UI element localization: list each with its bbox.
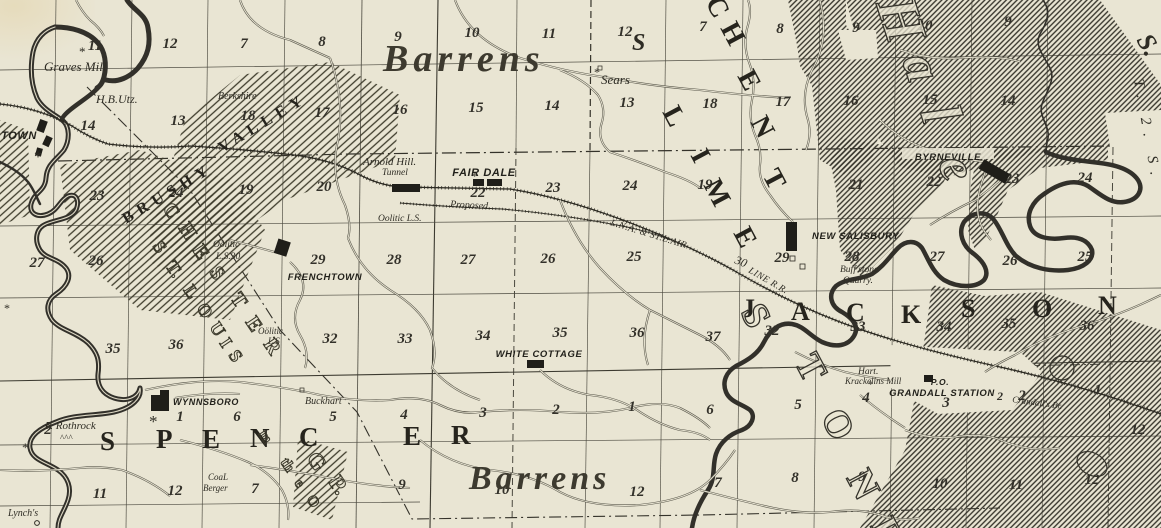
svg-text:15: 15 (469, 100, 485, 116)
svg-text:17: 17 (315, 105, 331, 121)
svg-text:1: 1 (176, 409, 184, 425)
svg-text:1: 1 (628, 399, 636, 415)
svg-text:29: 29 (310, 252, 327, 268)
svg-text:37: 37 (705, 329, 722, 345)
svg-text:K: K (901, 300, 922, 329)
svg-text:C: C (299, 422, 319, 452)
svg-text:36: 36 (629, 325, 646, 341)
svg-text:2: 2 (551, 402, 560, 418)
svg-text:6: 6 (233, 409, 241, 425)
svg-text:28: 28 (844, 249, 861, 265)
svg-text:*: * (34, 149, 42, 166)
svg-text:S: S (632, 30, 645, 56)
svg-text:Graves Mill: Graves Mill (44, 59, 107, 74)
svg-text:26: 26 (540, 251, 557, 267)
svg-text:12: 12 (168, 483, 184, 499)
svg-text:*: * (22, 440, 29, 455)
svg-text:5: 5 (329, 409, 337, 425)
svg-text:H.B.Utz.: H.B.Utz. (95, 92, 138, 106)
svg-text:Barrens: Barrens (382, 38, 545, 80)
svg-text:Lynch's: Lynch's (7, 508, 38, 519)
svg-text:*: * (868, 379, 874, 391)
svg-text:34: 34 (936, 319, 953, 335)
svg-text:14: 14 (545, 98, 561, 114)
svg-text:7: 7 (714, 475, 722, 491)
svg-text:26: 26 (1002, 253, 1019, 269)
svg-text:12: 12 (163, 36, 179, 52)
svg-text:34: 34 (475, 328, 492, 344)
svg-text:25: 25 (1077, 249, 1094, 265)
svg-text:1: 1 (1094, 382, 1102, 398)
svg-text:O: O (1032, 294, 1052, 323)
svg-text:Buff stone: Buff stone (840, 264, 878, 275)
svg-text:14: 14 (81, 118, 97, 134)
svg-text:32: 32 (764, 323, 781, 339)
svg-text:P: P (156, 424, 173, 454)
svg-text:5: 5 (794, 397, 802, 413)
svg-text:A: A (791, 297, 810, 326)
svg-text:Tunnel: Tunnel (382, 168, 408, 178)
svg-text:9: 9 (398, 477, 406, 493)
svg-text:*: * (79, 44, 86, 59)
svg-text:9: 9 (1004, 14, 1012, 30)
svg-text:Oölitic: Oölitic (258, 326, 283, 336)
svg-text:8: 8 (318, 34, 326, 50)
svg-text:11: 11 (88, 38, 102, 54)
svg-text:FAIR DALE: FAIR DALE (452, 167, 516, 179)
svg-text:S: S (100, 426, 115, 456)
svg-text:17: 17 (776, 94, 792, 110)
svg-text:8: 8 (776, 21, 784, 37)
svg-text:29: 29 (774, 250, 791, 266)
svg-text:Sears: Sears (601, 72, 630, 87)
svg-text:Arnold Hill.: Arnold Hill. (362, 156, 416, 168)
svg-text:25: 25 (626, 249, 643, 265)
svg-text:21: 21 (848, 177, 864, 193)
svg-text:27: 27 (929, 249, 946, 265)
svg-text:Oölitic: Oölitic (213, 240, 240, 250)
svg-text:35: 35 (1001, 316, 1018, 332)
svg-text:11: 11 (93, 486, 107, 502)
svg-text:24: 24 (1077, 170, 1094, 186)
svg-text:11: 11 (1009, 477, 1023, 493)
svg-text:WHITE COTTAGE: WHITE COTTAGE (496, 349, 583, 360)
svg-text:Berger: Berger (203, 483, 228, 493)
svg-text:E: E (202, 424, 220, 454)
svg-text:7: 7 (251, 481, 259, 497)
svg-text:22: 22 (470, 185, 487, 201)
svg-text:23: 23 (545, 180, 562, 196)
svg-text:^^^: ^^^ (60, 433, 73, 443)
svg-text:WYNNSBORO: WYNNSBORO (173, 397, 239, 407)
svg-text:6: 6 (706, 402, 714, 418)
svg-text:Barrens: Barrens (468, 460, 610, 497)
svg-text:14: 14 (1001, 93, 1017, 109)
svg-text:23: 23 (89, 188, 106, 204)
svg-text:CoaL: CoaL (208, 472, 228, 482)
svg-text:15: 15 (923, 92, 939, 108)
svg-text:12: 12 (1131, 422, 1147, 438)
svg-text:FRENCHTOWN: FRENCHTOWN (288, 272, 363, 283)
svg-text:26: 26 (88, 253, 105, 269)
svg-text:Oolitic L.S.: Oolitic L.S. (378, 214, 422, 224)
svg-text:Quarry.: Quarry. (843, 276, 873, 286)
svg-text:Proposed: Proposed (449, 199, 489, 212)
svg-text:*: * (4, 301, 10, 315)
svg-text:4: 4 (861, 390, 870, 406)
svg-text:P.O.: P.O. (931, 377, 949, 387)
svg-text:GRANDALL STATION: GRANDALL STATION (889, 388, 995, 399)
svg-text:13: 13 (171, 113, 187, 129)
svg-text:19: 19 (239, 182, 255, 198)
svg-text:3: 3 (478, 405, 487, 421)
svg-text:13: 13 (620, 95, 636, 111)
svg-text:Buckhart: Buckhart (305, 396, 342, 407)
svg-text:36: 36 (168, 337, 185, 353)
svg-text:8: 8 (791, 470, 799, 486)
svg-text:NEW SALISBURY: NEW SALISBURY (812, 231, 900, 242)
svg-text:7: 7 (240, 36, 248, 52)
svg-text:28: 28 (386, 252, 403, 268)
svg-text:36: 36 (1079, 318, 1096, 334)
svg-text:7: 7 (699, 19, 707, 35)
svg-text:2: 2 (996, 389, 1003, 403)
svg-text:12: 12 (630, 484, 646, 500)
svg-text:10: 10 (933, 476, 949, 492)
svg-text:E: E (403, 421, 421, 451)
svg-text:20: 20 (316, 179, 333, 195)
svg-text:Berkshire: Berkshire (218, 91, 257, 102)
svg-text:R: R (451, 420, 471, 450)
svg-text:27: 27 (460, 252, 477, 268)
svg-text:18: 18 (703, 96, 719, 112)
svg-text:*: * (594, 65, 600, 79)
svg-text:16: 16 (844, 93, 860, 109)
svg-text:S: S (961, 294, 975, 323)
svg-text:12: 12 (1085, 472, 1101, 488)
svg-text:32: 32 (322, 331, 339, 347)
svg-text:P. Rothrock: P. Rothrock (44, 420, 97, 432)
svg-text:24: 24 (622, 178, 639, 194)
svg-text:35: 35 (105, 341, 122, 357)
svg-text:9: 9 (852, 20, 860, 36)
svg-text:16: 16 (393, 102, 409, 118)
svg-text:L.S.30: L.S.30 (215, 252, 241, 262)
svg-text:TOWN: TOWN (1, 130, 37, 142)
svg-text:*: * (472, 171, 478, 183)
svg-text:35: 35 (552, 325, 569, 341)
svg-text:33: 33 (397, 331, 414, 347)
svg-text:N: N (1098, 291, 1117, 320)
svg-text:12: 12 (618, 24, 634, 40)
svg-text:27: 27 (29, 255, 46, 271)
svg-text:C: C (846, 298, 865, 327)
